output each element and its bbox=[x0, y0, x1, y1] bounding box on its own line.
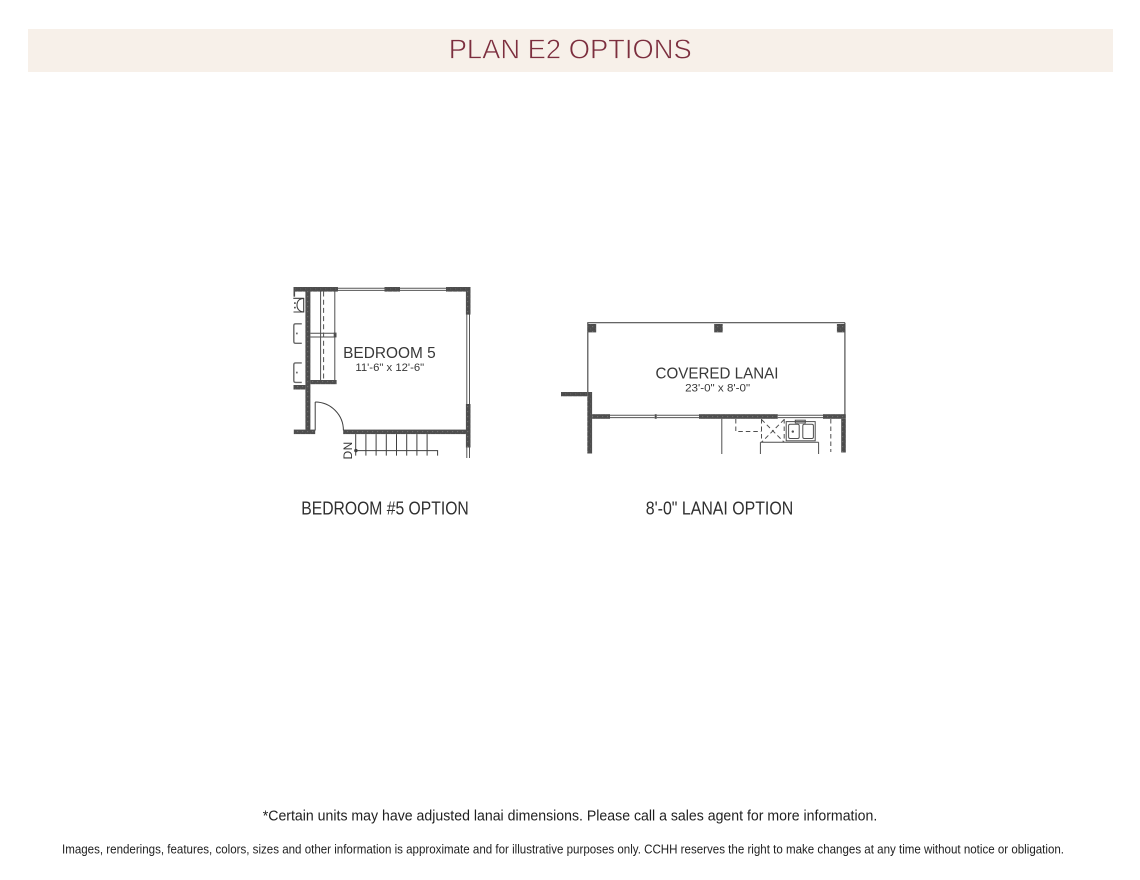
svg-text:Images, renderings, features,: Images, renderings, features, colors, si… bbox=[62, 842, 1064, 856]
svg-text:8'-0" LANAI OPTION: 8'-0" LANAI OPTION bbox=[646, 498, 793, 519]
svg-text:BEDROOM 5: BEDROOM 5 bbox=[343, 345, 436, 362]
svg-text:PLAN E2 OPTIONS: PLAN E2 OPTIONS bbox=[449, 33, 692, 64]
svg-text:*Certain units may have adjust: *Certain units may have adjusted lanai d… bbox=[263, 807, 878, 824]
svg-text:DN: DN bbox=[341, 441, 355, 459]
svg-text:BEDROOM #5 OPTION: BEDROOM #5 OPTION bbox=[301, 498, 469, 519]
svg-text:11'-6" x 12'-6": 11'-6" x 12'-6" bbox=[355, 362, 424, 374]
svg-text:23'-0" x 8'-0": 23'-0" x 8'-0" bbox=[685, 382, 750, 394]
svg-text:COVERED LANAI: COVERED LANAI bbox=[656, 365, 779, 382]
